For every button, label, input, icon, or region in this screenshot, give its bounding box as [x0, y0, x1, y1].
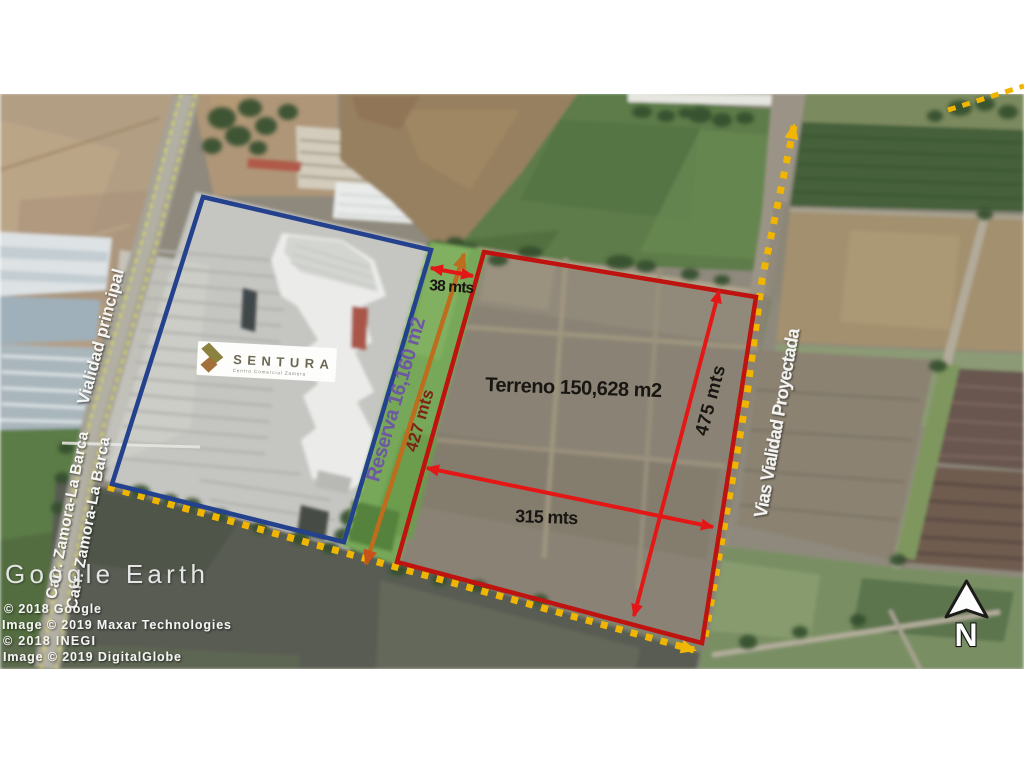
svg-text:38 mts: 38 mts — [429, 277, 475, 297]
svg-text:© 2018 INEGI: © 2018 INEGI — [3, 634, 95, 648]
svg-text:© 2018 Google: © 2018 Google — [4, 602, 101, 616]
svg-text:Image © 2019 Maxar Technologie: Image © 2019 Maxar Technologies — [2, 618, 231, 632]
svg-text:Image © 2019 DigitalGlobe: Image © 2019 DigitalGlobe — [3, 650, 181, 664]
svg-text:315 mts: 315 mts — [515, 506, 579, 528]
svg-text:N: N — [954, 617, 977, 653]
